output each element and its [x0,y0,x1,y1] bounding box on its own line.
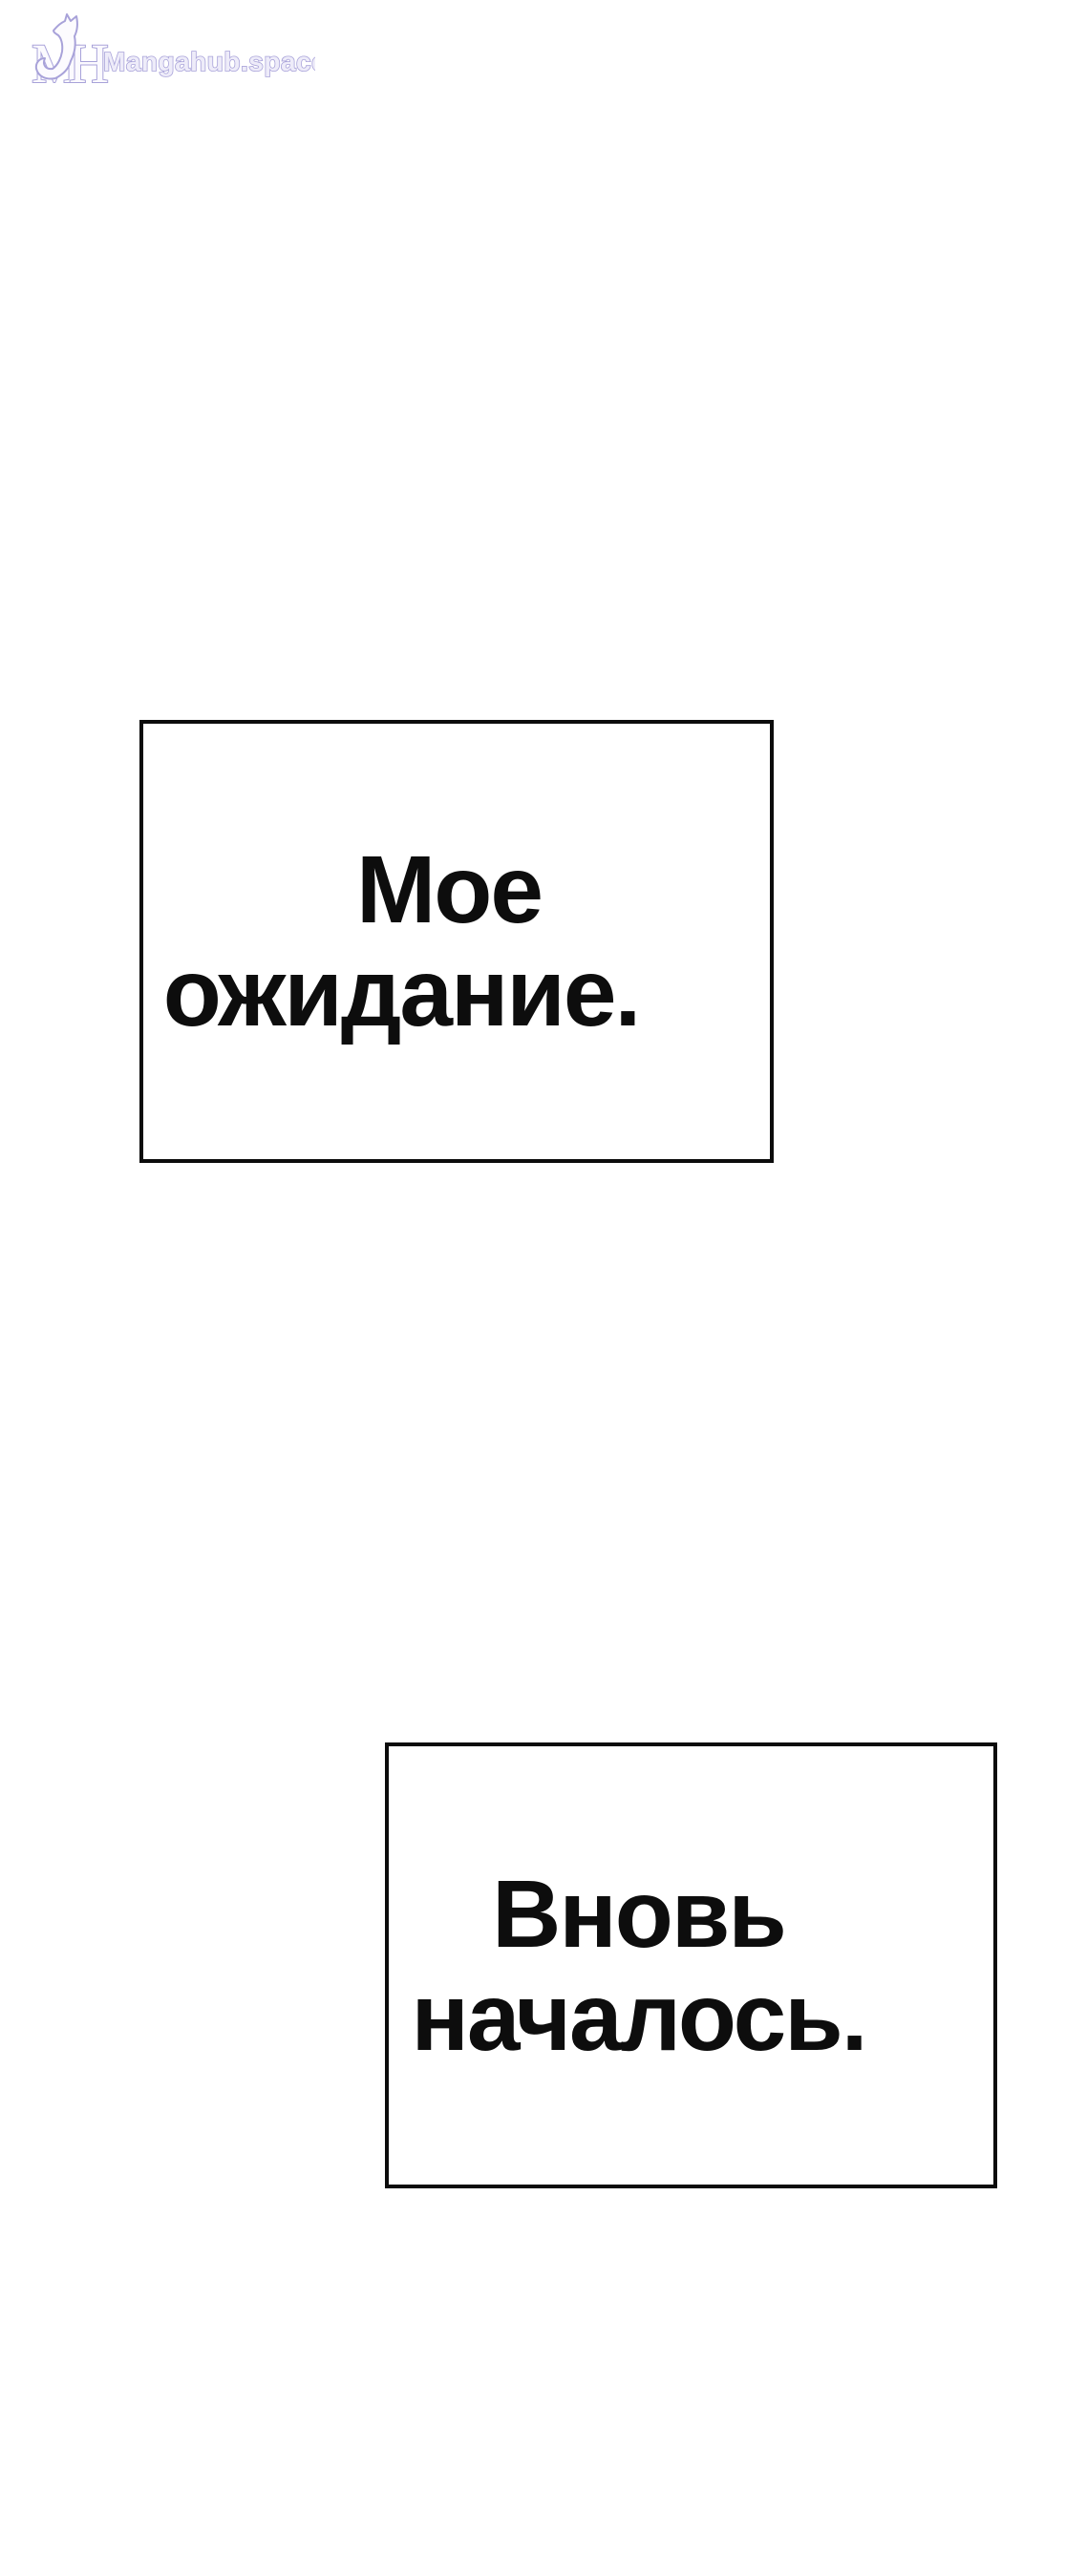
panel-2-text: Вновь началось. [411,1863,865,2069]
watermark-site-name: Mangahub.space [103,47,315,76]
panel-1-line-2: ожидание. [163,941,640,1045]
panel-2-line-1: Вновь [411,1863,865,1966]
panel-2-line-2: началось. [411,1966,865,2069]
mangahub-logo: M H Mangahub.space [27,10,315,94]
panel-1-text: Мое ожидание. [219,838,695,1045]
speech-panel-1: Мое ожидание. [139,720,774,1163]
manga-page: M H Mangahub.space Мое ожидание. Вновь н… [0,0,1087,2576]
site-watermark: M H Mangahub.space [27,10,315,94]
speech-panel-2: Вновь началось. [385,1742,997,2188]
panel-1-line-1: Мое [211,838,688,941]
